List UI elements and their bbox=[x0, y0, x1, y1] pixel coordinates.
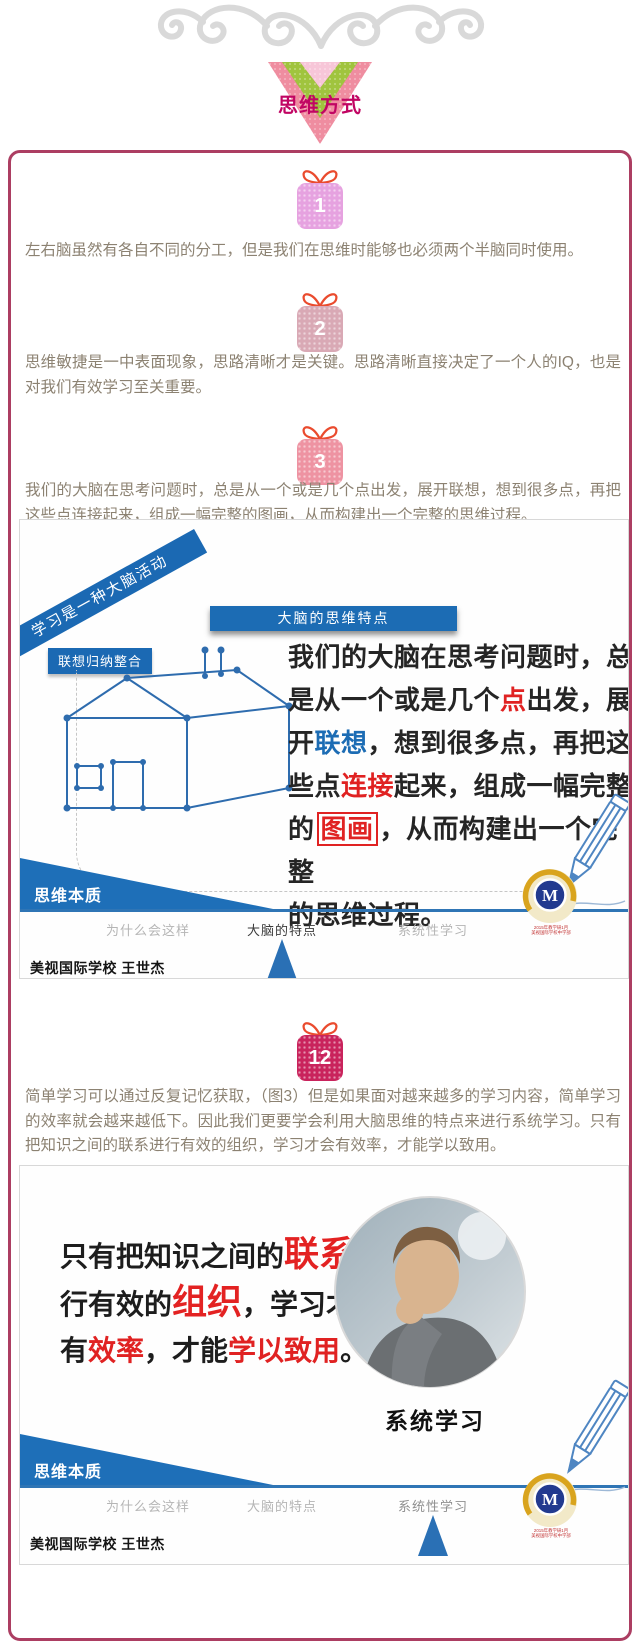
school-logo-m-badge-icon: M bbox=[522, 868, 578, 924]
badge-number: 2 bbox=[297, 306, 343, 352]
thinking-man-photo bbox=[332, 1194, 528, 1390]
paragraph-1: 左右脑虽然有各自不同的分工，但是我们在思维时能够也必须两个半脑同时使用。 bbox=[25, 239, 621, 264]
house-wireframe-icon bbox=[55, 640, 300, 825]
active-tab-pointer-icon bbox=[267, 939, 297, 979]
gift-badge-1: 1 bbox=[297, 167, 343, 229]
slide-header-bar: 大脑的思维特点 bbox=[210, 606, 457, 631]
wedge-label: 思维本质 bbox=[34, 1458, 102, 1482]
wedge-label: 思维本质 bbox=[34, 882, 102, 906]
gift-badge-3: 3 bbox=[297, 423, 343, 485]
nav-item-brain-features: 大脑的特点 bbox=[247, 1496, 317, 1515]
section-banner: 思维方式 bbox=[268, 62, 372, 144]
nav-item-systematic: 系统性学习 bbox=[398, 1496, 468, 1515]
content-card: 1 左右脑虽然有各自不同的分工，但是我们在思维时能够也必须两个半脑同时使用。 2… bbox=[8, 150, 632, 1641]
credit-line: 美视国际学校 王世杰 bbox=[30, 958, 165, 978]
slide-image-brain-thinking: 学习是一种大脑活动 大脑的思维特点 联想归纳整合 bbox=[19, 519, 629, 979]
article-page: 思维方式 1 左右脑虽然有各自不同的分工，但是我们在思维时能够也必须两个半脑同时… bbox=[0, 0, 642, 1645]
badge-number: 12 bbox=[297, 1035, 343, 1081]
gift-badge-2: 2 bbox=[297, 290, 343, 352]
paragraph-2: 思维敏捷是一中表面现象，思路清晰才是关键。思路清晰直接决定了一个人的IQ，也是对… bbox=[25, 351, 621, 400]
watermark: 2015年教学研1月美视国际学校中学部 bbox=[521, 1528, 582, 1538]
svg-text:M: M bbox=[542, 886, 558, 905]
footer-wedge: 思维本质 bbox=[20, 1434, 278, 1486]
badge-number: 1 bbox=[297, 183, 343, 229]
banner-title: 思维方式 bbox=[268, 89, 372, 118]
svg-text:M: M bbox=[542, 1490, 558, 1509]
slide-caption: 系统学习 bbox=[350, 1402, 520, 1436]
nav-item-systematic: 系统性学习 bbox=[398, 920, 468, 939]
gift-badge-12: 12 bbox=[297, 1019, 343, 1081]
watermark: 2015年教学研1月美视国际学校中学部 bbox=[521, 925, 582, 935]
nav-item-brain-features: 大脑的特点 bbox=[247, 920, 317, 939]
nav-item-why: 为什么会这样 bbox=[106, 920, 190, 939]
nav-item-why: 为什么会这样 bbox=[106, 1496, 190, 1515]
school-logo-m-badge-icon: M bbox=[522, 1472, 578, 1528]
active-tab-pointer-icon bbox=[418, 1515, 448, 1556]
credit-line: 美视国际学校 王世杰 bbox=[30, 1534, 165, 1554]
flourish-ornament-icon bbox=[151, 2, 491, 66]
slide-image-systematic-learning: 只有把知识之间的联系进行有效的组织，学习才会有效率，才能学以致用。 bbox=[19, 1165, 629, 1565]
paragraph-12: 简单学习可以通过反复记忆获取，（图3）但是如果面对越来越多的学习内容，简单学习的… bbox=[25, 1085, 621, 1159]
